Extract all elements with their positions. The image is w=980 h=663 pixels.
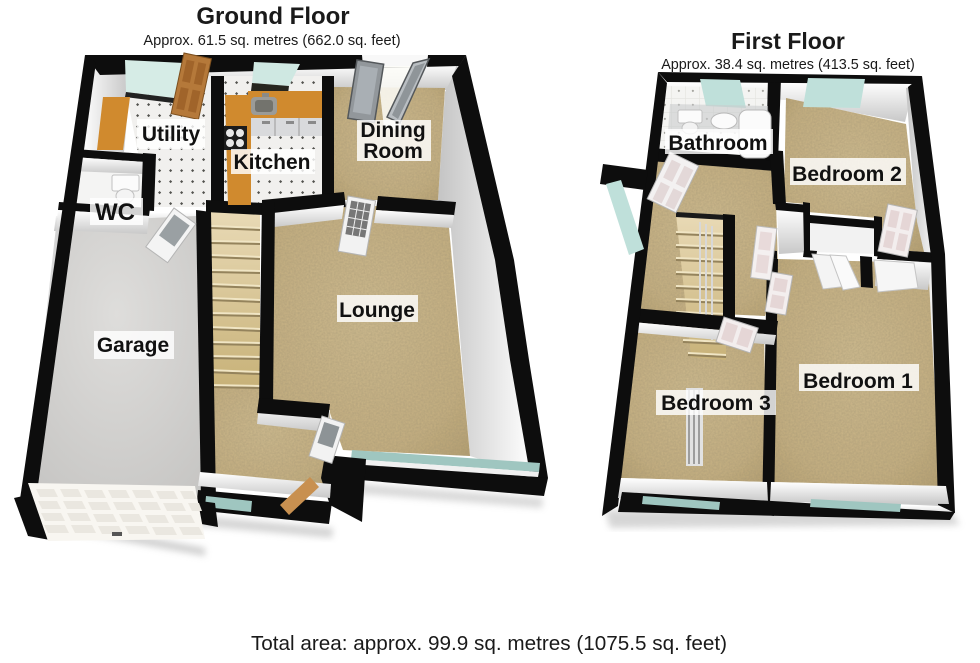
svg-text:Bedroom 3: Bedroom 3 [661,392,771,415]
svg-text:Bedroom 2: Bedroom 2 [792,163,902,186]
svg-text:Room: Room [363,140,423,163]
svg-text:Utility: Utility [142,123,201,146]
svg-text:Total area: approx. 99.9 sq. m: Total area: approx. 99.9 sq. metres (107… [251,632,727,655]
svg-text:Ground Floor: Ground Floor [196,3,349,30]
svg-text:Approx. 61.5 sq. metres (662.0: Approx. 61.5 sq. metres (662.0 sq. feet) [143,33,400,49]
svg-text:Kitchen: Kitchen [233,151,310,174]
svg-text:First Floor: First Floor [731,28,845,54]
svg-text:Approx. 38.4 sq. metres (413.5: Approx. 38.4 sq. metres (413.5 sq. feet) [661,57,915,73]
svg-text:Bathroom: Bathroom [668,132,767,155]
svg-text:Dining: Dining [360,119,425,142]
svg-text:Lounge: Lounge [339,299,415,322]
svg-text:WC: WC [95,199,135,226]
svg-text:Garage: Garage [97,334,169,357]
svg-text:Bedroom 1: Bedroom 1 [803,370,913,393]
